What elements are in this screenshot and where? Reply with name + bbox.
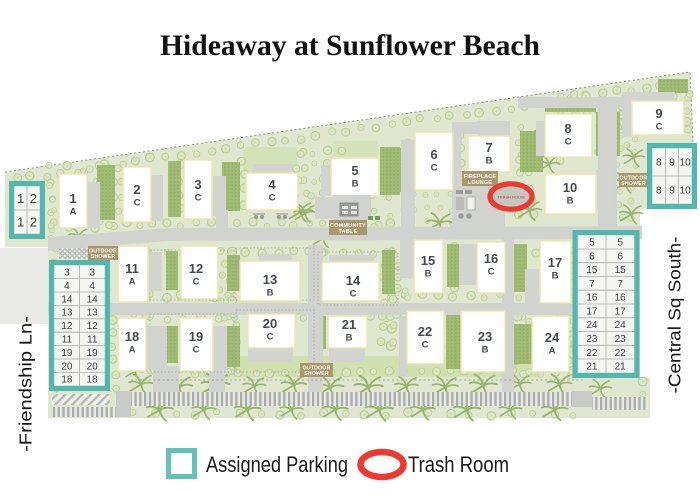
svg-text:22: 22	[418, 324, 432, 339]
svg-text:C: C	[134, 198, 141, 209]
svg-text:-Friendship Ln-: -Friendship Ln-	[16, 316, 36, 452]
svg-text:23: 23	[615, 334, 627, 345]
svg-text:A: A	[129, 345, 136, 356]
svg-text:21: 21	[342, 317, 356, 332]
svg-text:3: 3	[89, 268, 95, 279]
svg-text:5: 5	[351, 163, 358, 178]
svg-text:11: 11	[87, 335, 98, 346]
svg-text:13: 13	[61, 308, 73, 319]
svg-text:10: 10	[680, 186, 692, 197]
svg-text:7: 7	[589, 279, 595, 290]
svg-text:C: C	[488, 267, 495, 278]
svg-text:19: 19	[87, 348, 99, 359]
svg-text:7: 7	[617, 279, 623, 290]
svg-text:23: 23	[478, 329, 492, 344]
svg-text:B: B	[567, 196, 574, 207]
svg-text:18: 18	[87, 375, 99, 386]
svg-text:SHOWER: SHOWER	[91, 254, 116, 260]
svg-text:1: 1	[17, 191, 24, 206]
svg-text:24: 24	[615, 320, 627, 331]
svg-text:A: A	[549, 346, 556, 357]
svg-text:B: B	[267, 288, 274, 299]
svg-text:1: 1	[17, 215, 24, 230]
svg-text:B: B	[482, 345, 489, 356]
svg-text:21: 21	[615, 362, 627, 373]
svg-text:LOUNGE: LOUNGE	[468, 180, 492, 186]
svg-text:21: 21	[586, 362, 598, 373]
svg-text:5: 5	[617, 238, 623, 249]
svg-text:1: 1	[69, 191, 76, 206]
svg-text:C: C	[195, 193, 202, 204]
svg-text:3: 3	[194, 177, 201, 192]
svg-text:A: A	[70, 207, 77, 218]
svg-text:14: 14	[346, 273, 361, 288]
svg-text:6: 6	[430, 147, 437, 162]
svg-text:10: 10	[680, 158, 692, 169]
svg-text:14: 14	[61, 294, 73, 305]
svg-text:9: 9	[669, 158, 675, 169]
svg-text:12: 12	[87, 321, 99, 332]
svg-text:15: 15	[586, 265, 598, 276]
svg-text:16: 16	[615, 293, 627, 304]
svg-text:6: 6	[589, 251, 595, 262]
svg-text:17: 17	[548, 255, 562, 270]
svg-text:Hideaway at Sunflower Beach: Hideaway at Sunflower Beach	[160, 29, 540, 62]
svg-text:16: 16	[586, 293, 598, 304]
svg-text:A: A	[129, 277, 136, 288]
svg-text:18: 18	[61, 375, 73, 386]
svg-text:C: C	[269, 193, 276, 204]
svg-text:3: 3	[64, 268, 70, 279]
svg-text:17: 17	[586, 307, 598, 318]
svg-text:16: 16	[484, 251, 498, 266]
svg-text:10: 10	[563, 180, 577, 195]
svg-text:B: B	[346, 333, 353, 344]
svg-text:13: 13	[87, 308, 99, 319]
svg-text:2: 2	[30, 215, 37, 230]
svg-text:C: C	[565, 137, 572, 148]
svg-text:20: 20	[87, 361, 99, 372]
svg-text:9: 9	[669, 186, 675, 197]
svg-text:7: 7	[485, 140, 492, 155]
svg-text:2: 2	[133, 182, 140, 197]
svg-text:18: 18	[125, 329, 139, 344]
svg-text:11: 11	[62, 335, 73, 346]
svg-text:C: C	[193, 277, 200, 288]
svg-text:19: 19	[189, 329, 203, 344]
svg-text:8: 8	[564, 121, 571, 136]
svg-text:12: 12	[189, 261, 203, 276]
svg-text:C: C	[656, 122, 663, 133]
svg-text:B: B	[352, 179, 359, 190]
svg-text:C: C	[267, 332, 274, 343]
svg-text:SHOWER: SHOWER	[304, 371, 329, 377]
svg-text:C: C	[193, 345, 200, 356]
svg-text:8: 8	[656, 186, 662, 197]
svg-text:4: 4	[64, 281, 70, 292]
svg-text:B: B	[486, 156, 493, 167]
svg-text:C: C	[350, 289, 357, 300]
svg-text:2: 2	[30, 191, 37, 206]
svg-text:24: 24	[586, 320, 598, 331]
svg-text:23: 23	[586, 334, 598, 345]
svg-text:19: 19	[61, 348, 73, 359]
svg-text:4: 4	[268, 177, 276, 192]
svg-text:22: 22	[615, 348, 627, 359]
svg-text:20: 20	[61, 361, 73, 372]
svg-text:9: 9	[655, 106, 662, 121]
svg-text:-Central Sq South-: -Central Sq South-	[665, 236, 685, 393]
svg-text:22: 22	[586, 348, 598, 359]
svg-text:15: 15	[421, 253, 435, 268]
svg-text:11: 11	[125, 261, 139, 276]
svg-text:8: 8	[656, 158, 662, 169]
svg-text:15: 15	[615, 265, 627, 276]
svg-text:14: 14	[87, 294, 99, 305]
svg-text:17: 17	[615, 307, 627, 318]
svg-text:TRASH ROOM: TRASH ROOM	[497, 195, 524, 200]
svg-text:B: B	[552, 271, 559, 282]
svg-text:SHOWER: SHOWER	[621, 181, 646, 187]
svg-text:Assigned Parking: Assigned Parking	[206, 452, 348, 477]
svg-text:13: 13	[263, 272, 277, 287]
svg-text:20: 20	[263, 316, 277, 331]
svg-text:B: B	[425, 269, 432, 280]
svg-text:TABLE: TABLE	[338, 229, 357, 235]
svg-text:4: 4	[89, 281, 95, 292]
svg-text:24: 24	[545, 330, 560, 345]
svg-text:C: C	[422, 340, 429, 351]
svg-text:6: 6	[617, 251, 623, 262]
svg-text:5: 5	[589, 238, 595, 249]
svg-text:Trash Room: Trash Room	[408, 452, 509, 477]
svg-text:C: C	[431, 163, 438, 174]
svg-text:12: 12	[61, 321, 73, 332]
